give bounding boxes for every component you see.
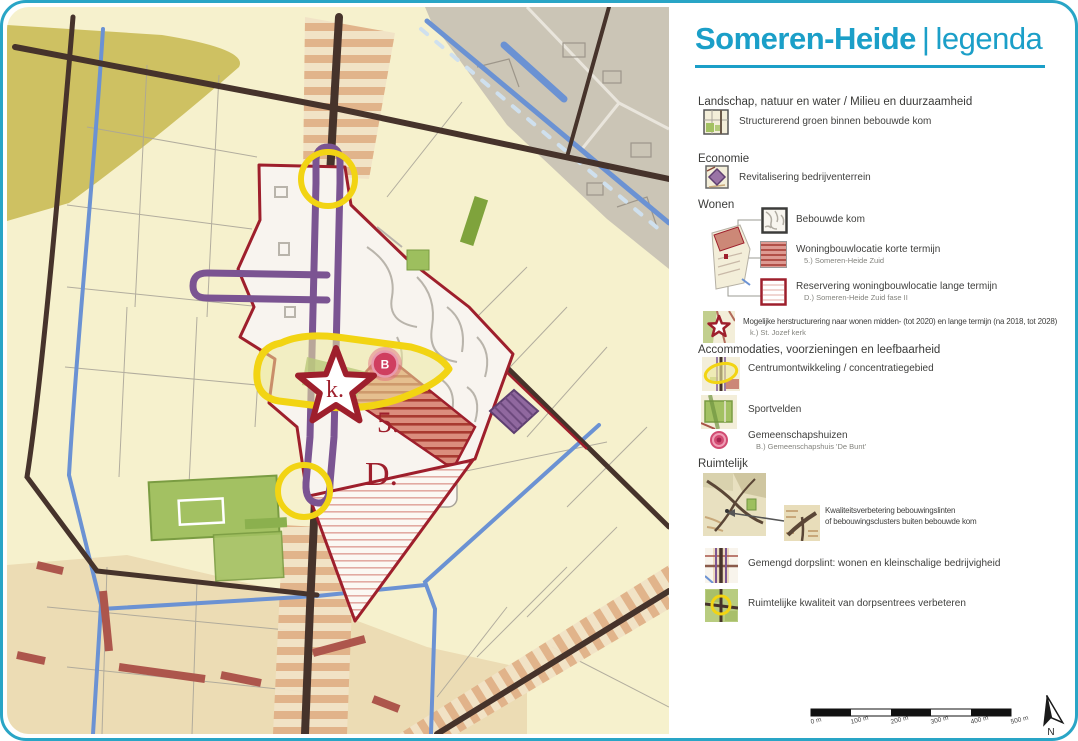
badge-b-label: B	[381, 358, 390, 372]
korte-termijn-icon[interactable]	[760, 241, 787, 268]
item-groen-label: Structurerend groen binnen bebouwde kom	[739, 116, 931, 127]
title-rule	[695, 65, 1045, 68]
item-kwaliteit-label-1: Kwaliteitsverbetering bebouwingslinten	[825, 506, 955, 515]
planning-map[interactable]: B k. 5. D.	[7, 7, 669, 734]
sub-lange-termijn: D.) Someren-Heide Zuid fase II	[804, 293, 908, 302]
item-revitalisering-label: Revitalisering bedrijventerrein	[739, 172, 871, 183]
dorpslint-icon[interactable]	[705, 548, 738, 583]
item-dorpsentrees-label: Ruimtelijke kwaliteit van dorpsentrees v…	[748, 598, 966, 609]
sub-gemeenschapshuizen: B.) Gemeenschapshuis 'De Bunt'	[756, 442, 866, 451]
item-lange-termijn-label: Reservering woningbouwlocatie lange term…	[796, 281, 997, 292]
green-patch	[407, 250, 429, 270]
item-sportvelden-label: Sportvelden	[748, 404, 801, 415]
section-ruimtelijk: Ruimtelijk	[698, 458, 748, 470]
north-arrow-icon: N	[1031, 693, 1071, 739]
title-separator: |	[922, 21, 930, 56]
plan-legend-page: B k. 5. D. Someren-Heide|legenda Landsch…	[0, 0, 1078, 741]
map-canvas: B k. 5. D.	[7, 7, 669, 734]
item-centrum-label: Centrumontwikkeling / concentratiegebied	[748, 363, 934, 374]
page-title: Someren-Heide|legenda	[695, 21, 1042, 57]
section-economie: Economie	[698, 153, 749, 165]
item-dorpslint-label: Gemengd dorpslint: wonen en kleinschalig…	[748, 558, 1000, 569]
sub-korte-termijn: 5.) Someren-Heide Zuid	[804, 256, 884, 265]
area-label-d: D.	[365, 456, 398, 493]
item-bebouwde-kom-label: Bebouwde kom	[796, 214, 865, 225]
area-label-5: 5.	[377, 406, 400, 439]
sub-herstructurering: k.) St. Jozef kerk	[750, 328, 806, 337]
dorpsentrees-icon[interactable]	[705, 589, 738, 622]
item-korte-termijn-label: Woningbouwlocatie korte termijn	[796, 244, 940, 255]
centrum-icon[interactable]	[702, 357, 740, 391]
kwaliteit-arrow	[703, 473, 823, 543]
section-landschap: Landschap, natuur en water / Milieu en d…	[698, 96, 972, 108]
scale-label-0: 0 m	[810, 716, 822, 725]
groen-icon[interactable]	[703, 109, 729, 135]
gemeenschapshuizen-icon[interactable]	[708, 429, 730, 451]
herstructurering-star-icon[interactable]	[703, 311, 735, 343]
item-herstructurering-label: Mogelijke herstructurering naar wonen mi…	[743, 317, 1057, 326]
bebouwde-kom-icon[interactable]	[761, 207, 788, 234]
wonen-map-thumbnail	[706, 221, 754, 296]
item-gemeenschapshuizen-label: Gemeenschapshuizen	[748, 430, 848, 441]
revitalisering-icon[interactable]	[705, 165, 729, 189]
title-name: Someren-Heide	[695, 21, 916, 56]
title-suffix: legenda	[935, 21, 1042, 56]
lange-termijn-icon[interactable]	[760, 278, 787, 306]
north-label: N	[1047, 727, 1054, 738]
star-k-label: k.	[326, 377, 344, 403]
sportvelden-icon[interactable]	[701, 395, 737, 429]
item-kwaliteit-label-2: of bebouwingsclusters buiten bebouwde ko…	[825, 517, 976, 526]
section-accommodaties: Accommodaties, voorzieningen en leefbaar…	[698, 344, 940, 356]
